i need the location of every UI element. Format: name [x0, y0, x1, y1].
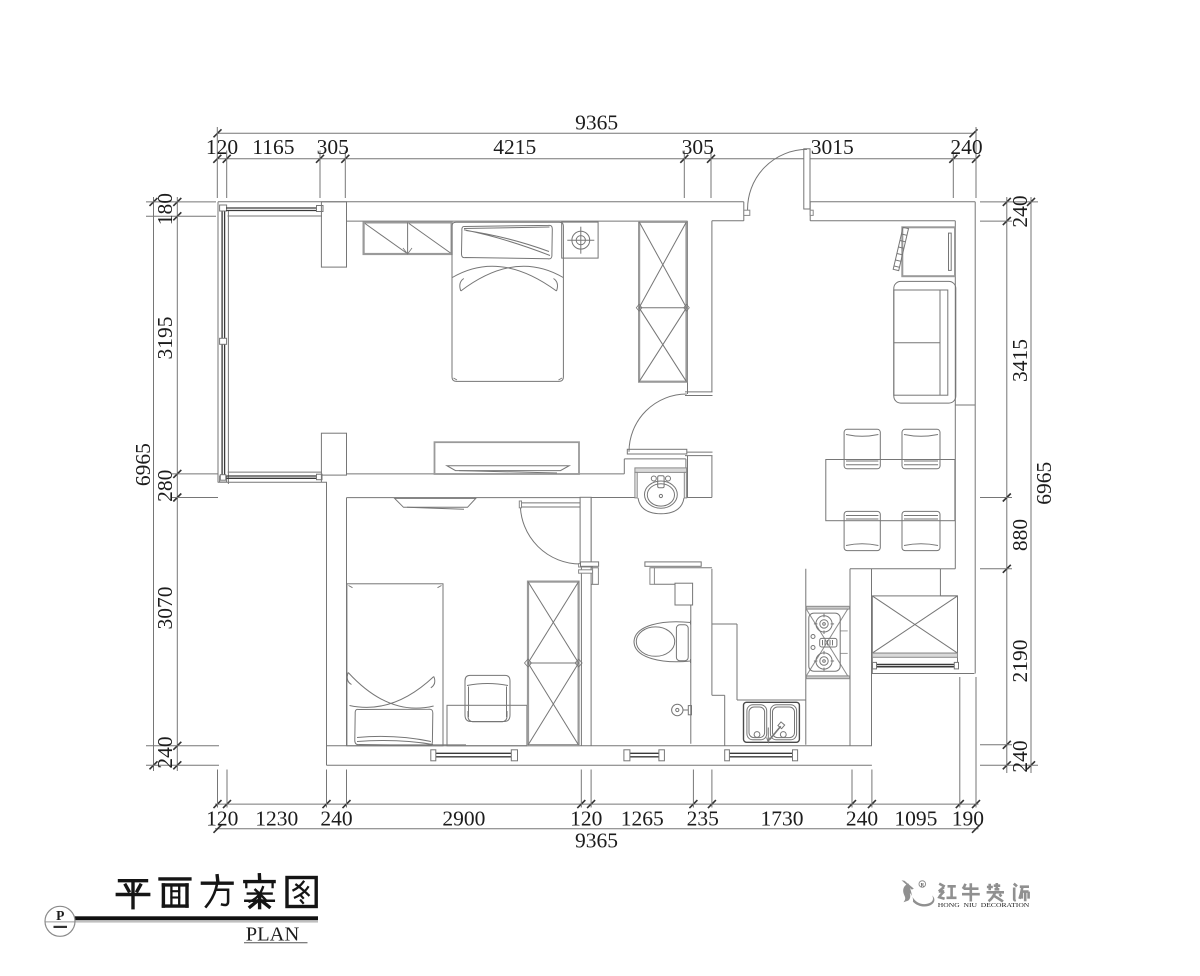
svg-text:R: R — [920, 882, 924, 888]
svg-text:6965: 6965 — [1032, 462, 1056, 505]
svg-text:PLAN: PLAN — [246, 923, 300, 945]
svg-text:1230: 1230 — [255, 807, 298, 831]
svg-text:305: 305 — [317, 135, 349, 159]
svg-text:3070: 3070 — [153, 587, 177, 630]
svg-text:9365: 9365 — [575, 110, 618, 134]
svg-text:1730: 1730 — [761, 807, 804, 831]
svg-text:305: 305 — [682, 135, 714, 159]
svg-text:235: 235 — [687, 807, 719, 831]
svg-text:240: 240 — [153, 736, 177, 768]
svg-text:2900: 2900 — [442, 807, 485, 831]
svg-text:1265: 1265 — [621, 807, 664, 831]
svg-text:120: 120 — [206, 135, 238, 159]
svg-text:P: P — [56, 908, 64, 923]
svg-text:3195: 3195 — [153, 317, 177, 360]
svg-text:880: 880 — [1008, 519, 1032, 551]
svg-text:190: 190 — [952, 807, 984, 831]
svg-text:120: 120 — [206, 807, 238, 831]
svg-text:240: 240 — [846, 807, 878, 831]
svg-text:6965: 6965 — [131, 443, 155, 486]
svg-text:280: 280 — [153, 470, 177, 502]
svg-text:180: 180 — [153, 193, 177, 225]
svg-text:240: 240 — [1008, 740, 1032, 772]
svg-text:9365: 9365 — [575, 828, 618, 852]
svg-text:3015: 3015 — [811, 135, 854, 159]
svg-text:HONG NIU DECORATION: HONG NIU DECORATION — [938, 902, 1030, 909]
svg-text:240: 240 — [320, 807, 352, 831]
svg-text:240: 240 — [1008, 195, 1032, 227]
svg-text:1165: 1165 — [252, 135, 294, 159]
svg-text:240: 240 — [950, 135, 982, 159]
svg-text:1095: 1095 — [894, 807, 937, 831]
svg-text:4215: 4215 — [493, 135, 536, 159]
svg-text:2190: 2190 — [1008, 640, 1032, 683]
svg-text:120: 120 — [570, 807, 602, 831]
svg-text:3415: 3415 — [1008, 339, 1032, 382]
